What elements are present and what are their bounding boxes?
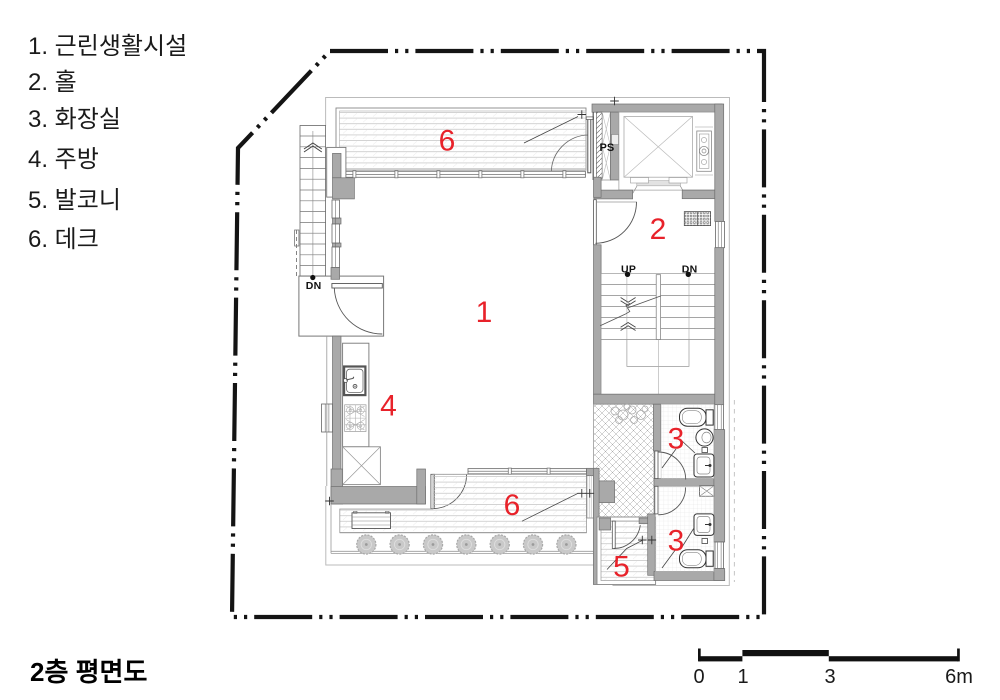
svg-text:DN: DN bbox=[306, 280, 322, 292]
svg-text:5: 5 bbox=[613, 551, 630, 584]
svg-text:6: 6 bbox=[504, 489, 521, 522]
svg-text:4: 4 bbox=[380, 390, 397, 423]
svg-text:UP: UP bbox=[621, 263, 636, 275]
svg-text:DN: DN bbox=[682, 263, 698, 275]
svg-text:1: 1 bbox=[737, 666, 748, 688]
svg-text:3: 3 bbox=[824, 666, 835, 688]
svg-text:1: 1 bbox=[476, 296, 493, 329]
svg-text:6m: 6m bbox=[945, 666, 973, 688]
svg-text:0: 0 bbox=[693, 666, 704, 688]
svg-text:3: 3 bbox=[668, 525, 685, 558]
svg-text:2: 2 bbox=[650, 213, 667, 246]
svg-text:PS: PS bbox=[600, 142, 615, 154]
svg-text:6: 6 bbox=[439, 125, 456, 158]
svg-text:3: 3 bbox=[668, 423, 685, 456]
